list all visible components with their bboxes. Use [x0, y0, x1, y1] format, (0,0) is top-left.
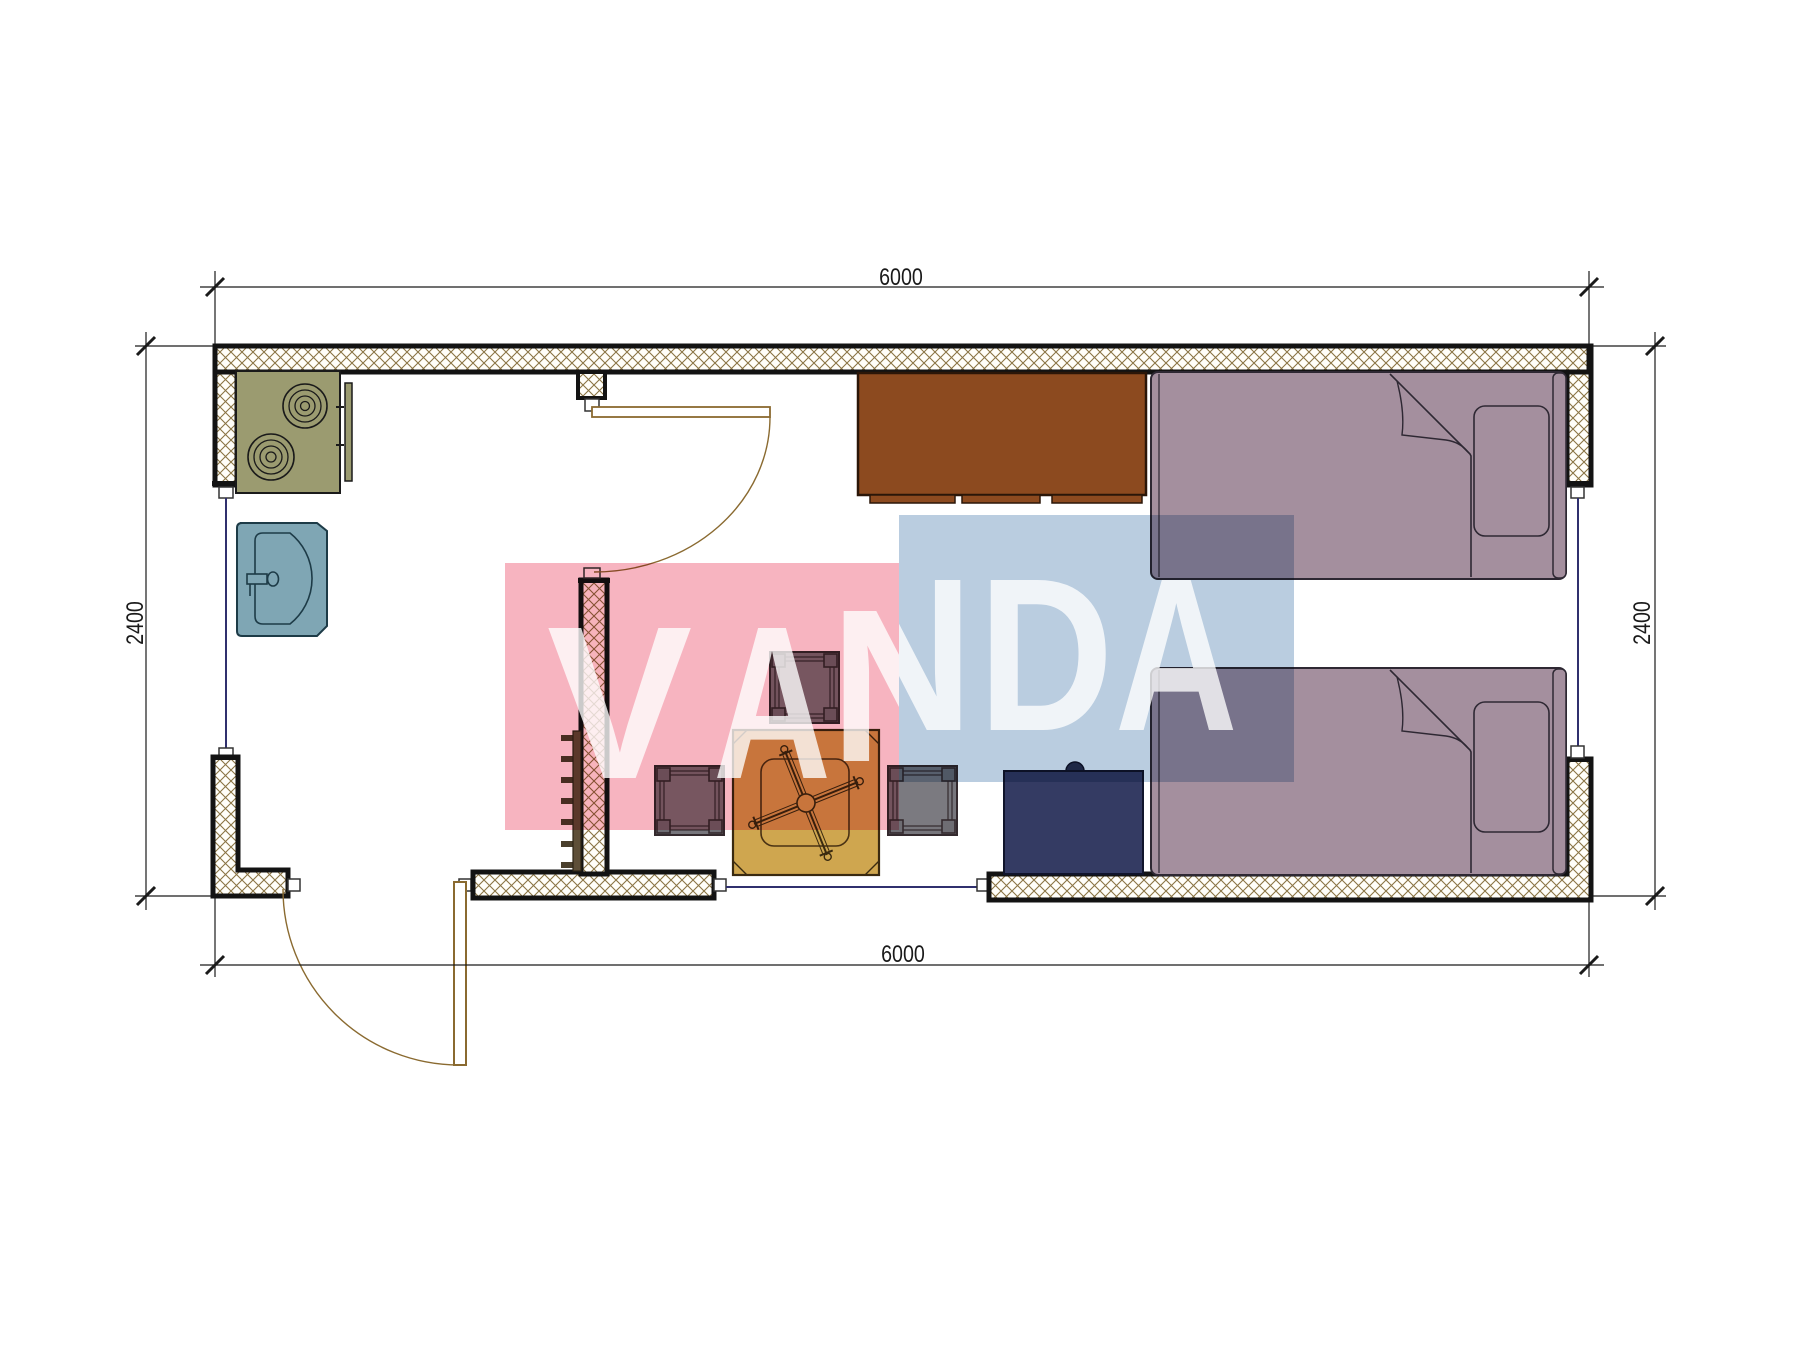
svg-text:A: A — [1115, 534, 1238, 777]
svg-text:2400: 2400 — [121, 601, 148, 645]
svg-text:6000: 6000 — [881, 940, 925, 967]
svg-text:V: V — [547, 582, 692, 825]
svg-text:A: A — [713, 581, 831, 824]
svg-text:6000: 6000 — [879, 263, 923, 290]
svg-text:2400: 2400 — [1628, 601, 1655, 645]
svg-text:D: D — [978, 534, 1113, 777]
